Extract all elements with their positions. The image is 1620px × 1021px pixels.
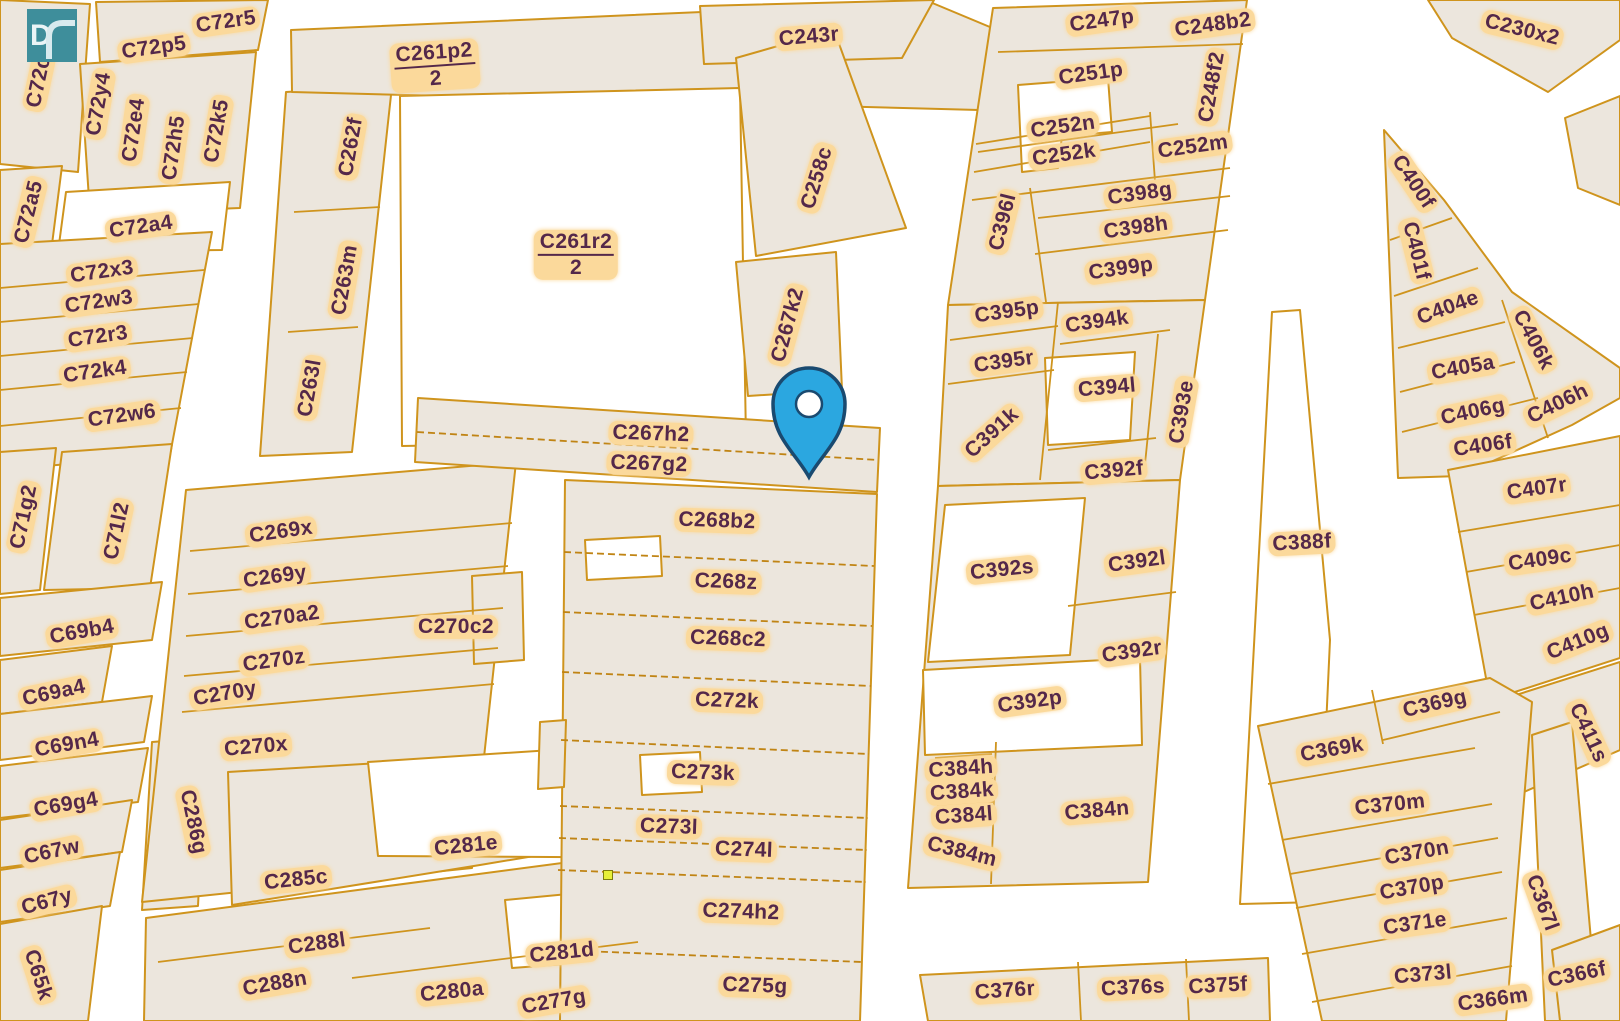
parcel-map-svg [0, 0, 1620, 1021]
map-canvas[interactable]: C72cC72r5C72p5C72y4C72e4C72h5C72k5C72a5C… [0, 0, 1620, 1021]
road-curve-icon [41, 13, 75, 59]
waypoint-dot [603, 870, 613, 880]
location-pin-icon[interactable] [764, 366, 854, 486]
parcel-blocks [0, 0, 1620, 1021]
app-logo: D [27, 9, 77, 62]
